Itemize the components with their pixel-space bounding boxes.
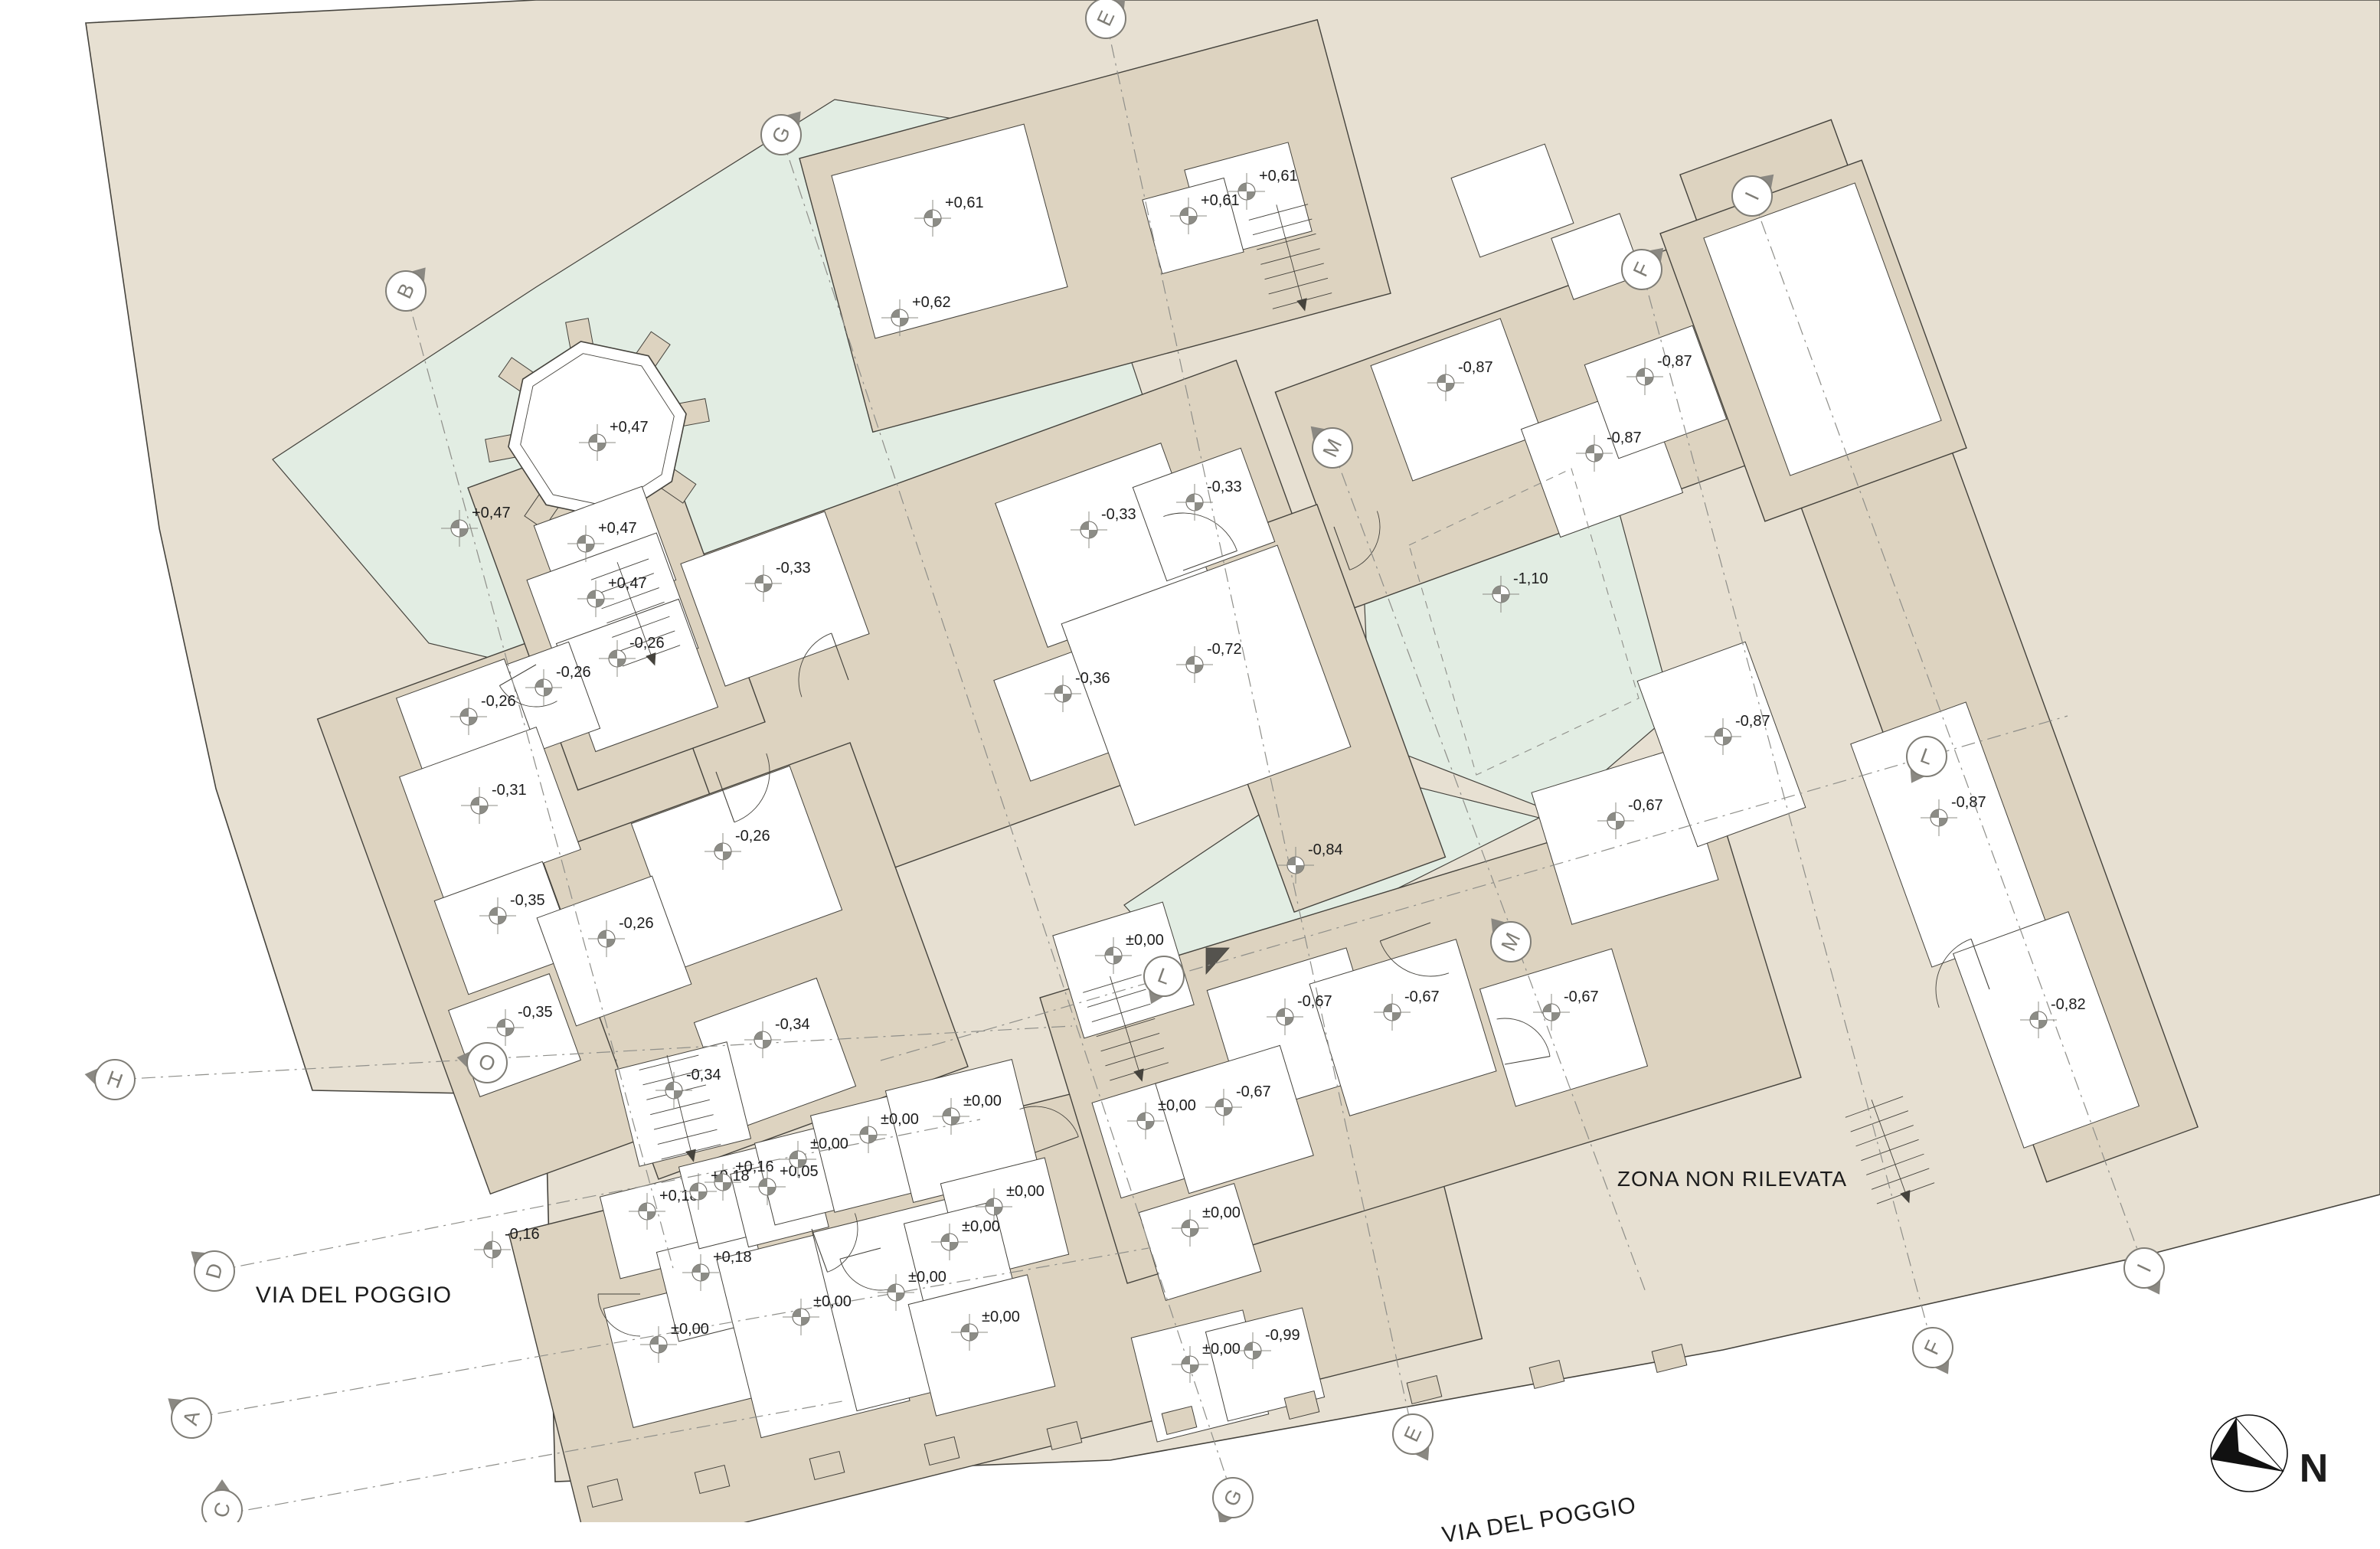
grid-marker-C: C (202, 1479, 242, 1522)
elevation-value: -0,87 (1735, 713, 1770, 730)
grid-marker-F: F (1622, 248, 1663, 289)
elevation-value: ±0,00 (810, 1136, 848, 1152)
grid-marker-M: M (1311, 426, 1352, 468)
elevation-value: +0,16 (735, 1158, 774, 1175)
grid-marker-I: I (1732, 175, 1774, 216)
elevation-value: +0,61 (945, 194, 984, 211)
elevation-value: -0,67 (1236, 1083, 1271, 1100)
elevation-value: -0,26 (735, 828, 770, 845)
elevation-value: +0,62 (912, 294, 951, 311)
elevation-value: -0,31 (492, 782, 527, 799)
elevation-value: -0,26 (556, 664, 591, 681)
elevation-value: +0,61 (1259, 168, 1298, 185)
elevation-value: -0,36 (1075, 670, 1110, 687)
elevation-value: ±0,00 (671, 1321, 709, 1338)
elevation-value: ±0,00 (881, 1111, 919, 1128)
grid-marker-F: F (1913, 1328, 1953, 1374)
elevation-value: ±0,00 (1158, 1097, 1196, 1114)
elevation-value: -0,35 (510, 892, 545, 909)
elevation-value: +0,47 (610, 419, 649, 436)
elevation-value: -0,33 (1101, 506, 1136, 523)
elevation-value: +0,47 (598, 520, 637, 537)
grid-marker-E: E (1393, 1414, 1433, 1461)
elevation-value: ±0,00 (908, 1269, 946, 1286)
street-label-via-del-poggio: VIA DEL POGGIO (256, 1283, 452, 1309)
elevation-value: -1,10 (1513, 570, 1548, 587)
elevation-value: -0,35 (518, 1004, 553, 1021)
elevation-value: -0,82 (2051, 996, 2086, 1013)
elevation-value: -0,87 (1607, 430, 1642, 446)
elevation-value: -0,67 (1628, 797, 1663, 814)
elevation-value: -0,26 (619, 915, 654, 932)
elevation-value: -0,87 (1657, 353, 1692, 370)
north-compass-icon (2211, 1415, 2287, 1492)
elevation-value: -0,67 (1404, 989, 1440, 1005)
elevation-value: -0,33 (776, 560, 811, 577)
elevation-value: -0,72 (1207, 641, 1242, 658)
zone-not-surveyed-label: ZONA NON RILEVATA (1617, 1167, 1847, 1191)
elevation-value: -0,33 (1207, 479, 1242, 495)
elevation-value: ±0,00 (982, 1309, 1020, 1325)
elevation-value: -0,26 (629, 635, 665, 652)
elevation-value: -0,87 (1951, 794, 1986, 811)
elevation-value: -0,34 (775, 1016, 810, 1033)
elevation-value: ±0,00 (813, 1293, 852, 1310)
elevation-value: -0,67 (1297, 993, 1332, 1010)
elevation-value: +0,47 (608, 575, 647, 592)
grid-marker-E: E (1086, 0, 1126, 38)
elevation-value: -0,34 (686, 1067, 721, 1083)
north-label: N (2300, 1446, 2329, 1492)
elevation-value: +0,18 (713, 1249, 752, 1266)
elevation-value: ±0,00 (963, 1093, 1002, 1109)
elevation-value: -0,84 (1308, 841, 1343, 858)
elevation-value: ±0,00 (962, 1218, 1000, 1235)
elevation-value: +0,47 (472, 505, 511, 521)
grid-marker-H: H (85, 1060, 135, 1100)
elevation-value: -0,26 (481, 693, 516, 710)
floor-plan-canvas: +0,62+0,47+0,47+0,47+0,47+0,61+0,61+0,61… (0, 0, 2380, 1522)
elevation-value: ±0,00 (1202, 1204, 1241, 1221)
elevation-value: ±0,00 (1202, 1341, 1241, 1358)
elevation-value: -0,87 (1458, 359, 1493, 376)
elevation-value: +0,61 (1201, 192, 1240, 209)
grid-marker-D: D (191, 1251, 234, 1291)
elevation-value: ±0,00 (1126, 932, 1164, 949)
grid-marker-I: I (2124, 1248, 2164, 1295)
grid-marker-G: G (1213, 1478, 1253, 1522)
elevation-value: -0,99 (1265, 1327, 1300, 1344)
elevation-value: -0,67 (1564, 989, 1599, 1005)
elevation-value: ±0,00 (1006, 1183, 1045, 1200)
elevation-value: -0,16 (505, 1226, 540, 1243)
grid-marker-A: A (168, 1398, 211, 1438)
